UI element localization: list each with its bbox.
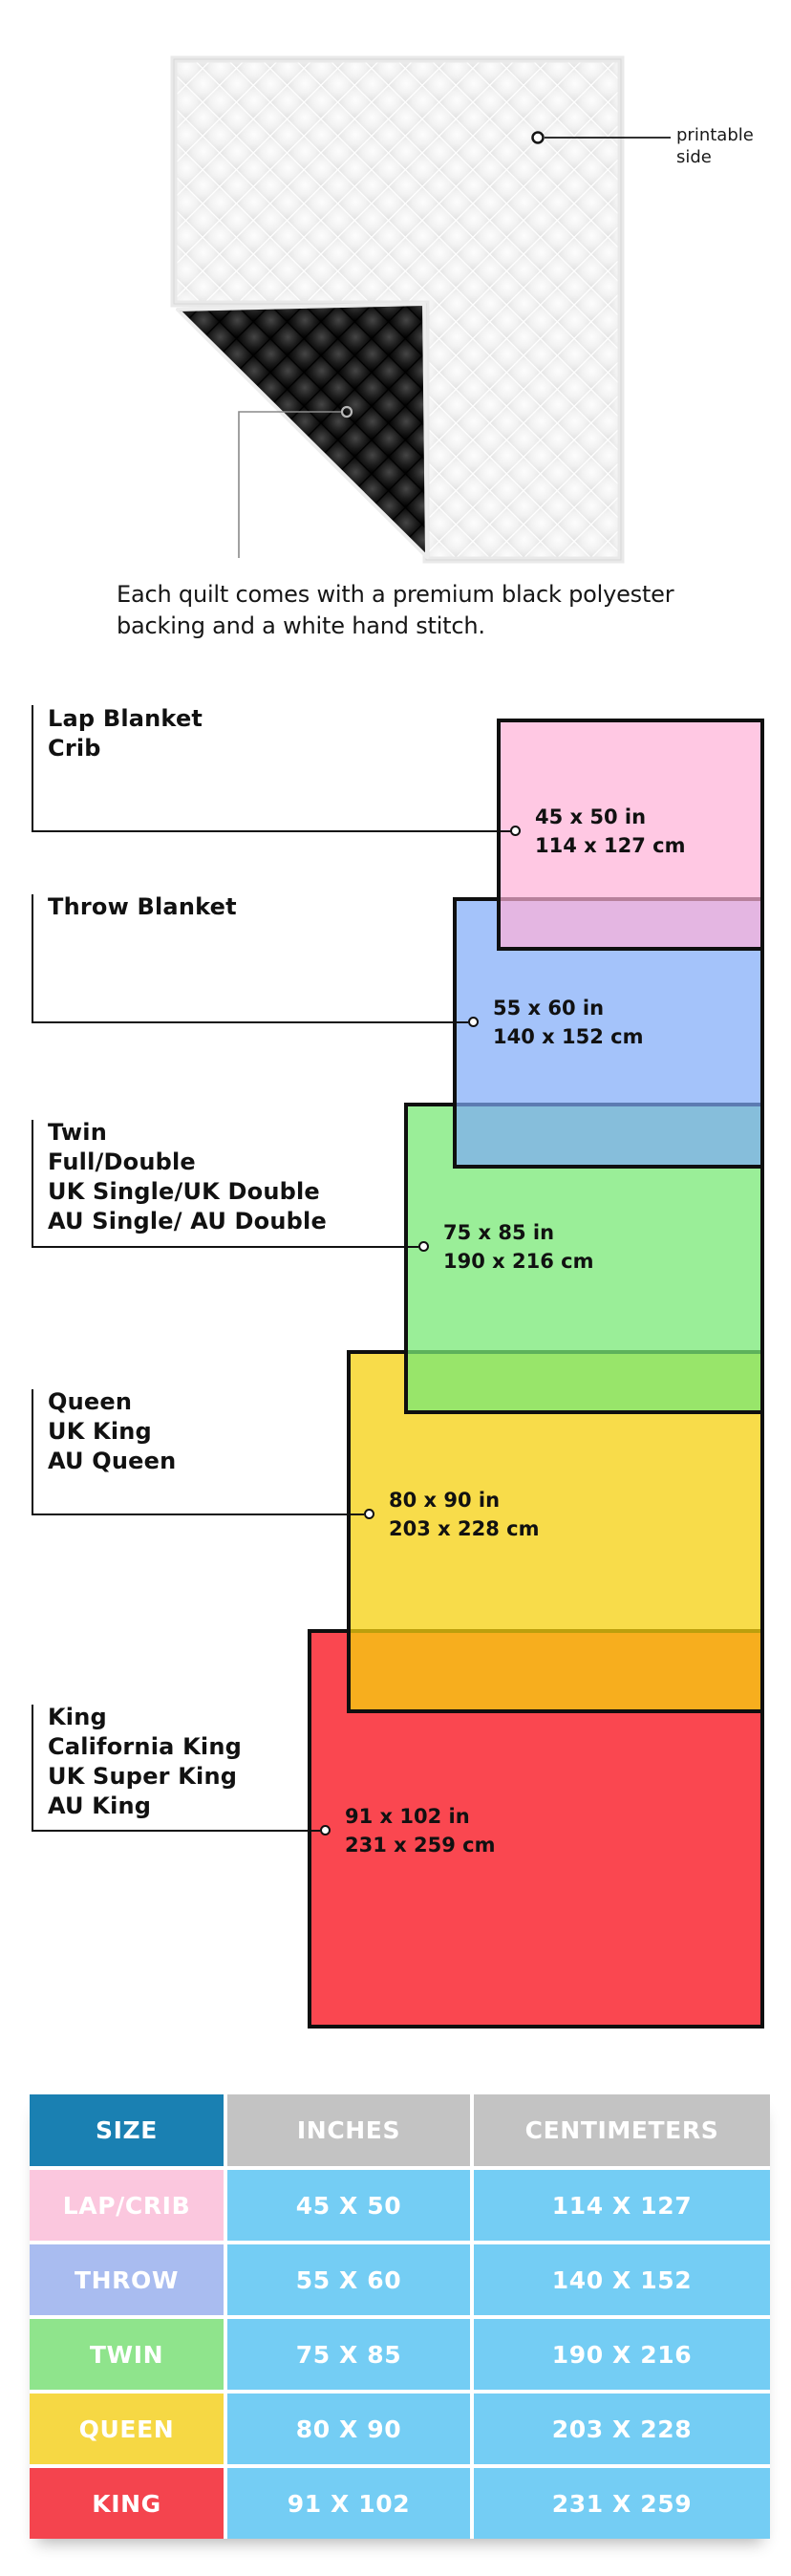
label-line: Lap Blanket xyxy=(48,704,203,734)
label-line: UK Single/UK Double xyxy=(48,1177,327,1207)
label-line: Throw Blanket xyxy=(48,892,237,922)
table-row-cm: 114 X 127 xyxy=(474,2170,770,2241)
leader-hline-queen xyxy=(32,1513,364,1515)
leader-vline-lap-crib xyxy=(32,705,33,832)
size-annotation-lap-crib: 45 x 50 in 114 x 127 cm xyxy=(535,803,685,860)
label-line: Full/Double xyxy=(48,1148,327,1177)
leader-dot-icon-queen xyxy=(364,1509,374,1519)
table-row-cm: 190 X 216 xyxy=(474,2319,770,2390)
table-header-inches: INCHES xyxy=(227,2094,470,2166)
leader-hline-throw xyxy=(32,1021,468,1023)
diagram-label-twin: Twin Full/Double UK Single/UK Double AU … xyxy=(48,1118,327,1236)
leader-vline-twin xyxy=(32,1120,33,1248)
size-inches: 80 x 90 in xyxy=(389,1486,539,1514)
label-line: AU Single/ AU Double xyxy=(48,1207,327,1236)
label-line: Queen xyxy=(48,1387,176,1417)
table-row-cm: 203 X 228 xyxy=(474,2394,770,2464)
quilt-illustration xyxy=(0,0,791,631)
label-line: Twin xyxy=(48,1118,327,1148)
table-row-inches: 91 X 102 xyxy=(227,2468,470,2539)
printable-side-label: printable side xyxy=(676,124,783,168)
table-row-size: TWIN xyxy=(30,2319,224,2390)
table-row-inches: 75 X 85 xyxy=(227,2319,470,2390)
label-line: King xyxy=(48,1703,242,1732)
leader-dot-icon-lap-crib xyxy=(510,826,521,836)
size-table: SIZE INCHES CENTIMETERS LAP/CRIB 45 X 50… xyxy=(30,2094,770,2539)
leader-dot-icon-king xyxy=(320,1825,331,1835)
label-line: AU Queen xyxy=(48,1447,176,1476)
table-row-inches: 80 X 90 xyxy=(227,2394,470,2464)
table-row-cm: 140 X 152 xyxy=(474,2244,770,2315)
table-row-cm: 231 X 259 xyxy=(474,2468,770,2539)
size-cm: 203 x 228 cm xyxy=(389,1514,539,1543)
size-inches: 91 x 102 in xyxy=(345,1802,495,1831)
size-inches: 45 x 50 in xyxy=(535,803,685,831)
diagram-label-lap-crib: Lap Blanket Crib xyxy=(48,704,203,763)
size-annotation-queen: 80 x 90 in 203 x 228 cm xyxy=(389,1486,539,1543)
table-row-inches: 45 X 50 xyxy=(227,2170,470,2241)
size-cm: 140 x 152 cm xyxy=(493,1022,643,1051)
label-line: California King xyxy=(48,1732,242,1762)
diagram-label-king: King California King UK Super King AU Ki… xyxy=(48,1703,242,1821)
label-line: UK King xyxy=(48,1417,176,1447)
table-row-inches: 55 X 60 xyxy=(227,2244,470,2315)
leader-hline-king xyxy=(32,1830,320,1832)
leader-vline-queen xyxy=(32,1389,33,1515)
label-line: Crib xyxy=(48,734,203,763)
diagram-label-throw: Throw Blanket xyxy=(48,892,237,922)
table-row-size: KING xyxy=(30,2468,224,2539)
printable-callout-dot-icon xyxy=(533,133,544,143)
leader-dot-icon-twin xyxy=(418,1241,429,1252)
leader-vline-king xyxy=(32,1705,33,1832)
leader-vline-throw xyxy=(32,894,33,1023)
infographic-canvas: printable side Each quilt comes with a p… xyxy=(0,0,791,2576)
label-line: AU King xyxy=(48,1792,242,1821)
diagram-label-queen: Queen UK King AU Queen xyxy=(48,1387,176,1476)
quilt-caption: Each quilt comes with a premium black po… xyxy=(117,579,736,642)
table-header-size: SIZE xyxy=(30,2094,224,2166)
leader-hline-twin xyxy=(32,1246,418,1248)
leader-hline-lap-crib xyxy=(32,830,513,832)
table-row-size: LAP/CRIB xyxy=(30,2170,224,2241)
size-inches: 55 x 60 in xyxy=(493,994,643,1022)
table-row-size: QUEEN xyxy=(30,2394,224,2464)
label-line: UK Super King xyxy=(48,1762,242,1792)
quilt-backing-triangle xyxy=(178,304,427,557)
size-cm: 114 x 127 cm xyxy=(535,831,685,860)
leader-dot-icon-throw xyxy=(468,1017,479,1027)
table-row-size: THROW xyxy=(30,2244,224,2315)
size-cm: 190 x 216 cm xyxy=(443,1247,593,1276)
size-annotation-king: 91 x 102 in 231 x 259 cm xyxy=(345,1802,495,1859)
size-annotation-throw: 55 x 60 in 140 x 152 cm xyxy=(493,994,643,1051)
table-header-centimeters: CENTIMETERS xyxy=(474,2094,770,2166)
size-annotation-twin: 75 x 85 in 190 x 216 cm xyxy=(443,1218,593,1276)
size-cm: 231 x 259 cm xyxy=(345,1831,495,1859)
size-inches: 75 x 85 in xyxy=(443,1218,593,1247)
